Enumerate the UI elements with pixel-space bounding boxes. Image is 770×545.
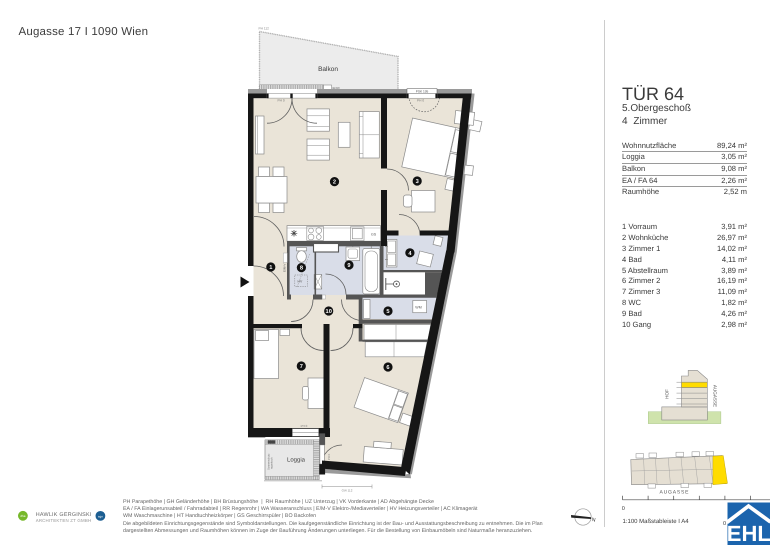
svg-text:2: 2 <box>333 180 336 186</box>
svg-text:0: 0 <box>622 506 625 512</box>
svg-text:PH 0: PH 0 <box>301 424 308 428</box>
svg-text:PH 0: PH 0 <box>417 99 424 103</box>
svg-text:3: 3 <box>416 179 419 185</box>
svg-text:1: 1 <box>269 265 272 271</box>
svg-text:PSK 195: PSK 195 <box>416 90 429 94</box>
svg-text:raumhoch: raumhoch <box>271 457 274 469</box>
svg-text:EHL: EHL <box>727 521 770 545</box>
svg-text:ege: ege <box>98 514 103 518</box>
svg-text:PH 0: PH 0 <box>278 99 285 103</box>
svg-text:PH 0: PH 0 <box>327 453 331 460</box>
svg-text:Balkon: Balkon <box>318 66 338 73</box>
svg-text:E/M-V: E/M-V <box>282 264 286 272</box>
svg-text:6: 6 <box>386 365 389 371</box>
svg-text:Loggia: Loggia <box>287 457 306 464</box>
svg-text:N: N <box>591 517 596 524</box>
svg-text:AUGASSE: AUGASSE <box>660 490 690 496</box>
svg-text:9: 9 <box>347 263 350 269</box>
svg-text:GW 112: GW 112 <box>342 489 353 493</box>
svg-text:HV: HV <box>298 280 303 284</box>
svg-text:WM: WM <box>415 306 421 310</box>
svg-text:0: 0 <box>723 521 726 527</box>
svg-text:7: 7 <box>300 364 303 370</box>
svg-text:AUGASSE: AUGASSE <box>713 385 718 407</box>
svg-text:8: 8 <box>300 266 303 272</box>
svg-text:HOF: HOF <box>665 389 670 399</box>
svg-text:PH 112: PH 112 <box>259 27 270 31</box>
svg-text:dha: dha <box>20 514 25 518</box>
svg-text:5: 5 <box>386 309 389 315</box>
svg-text:GS: GS <box>371 233 377 237</box>
svg-text:10: 10 <box>326 309 332 315</box>
